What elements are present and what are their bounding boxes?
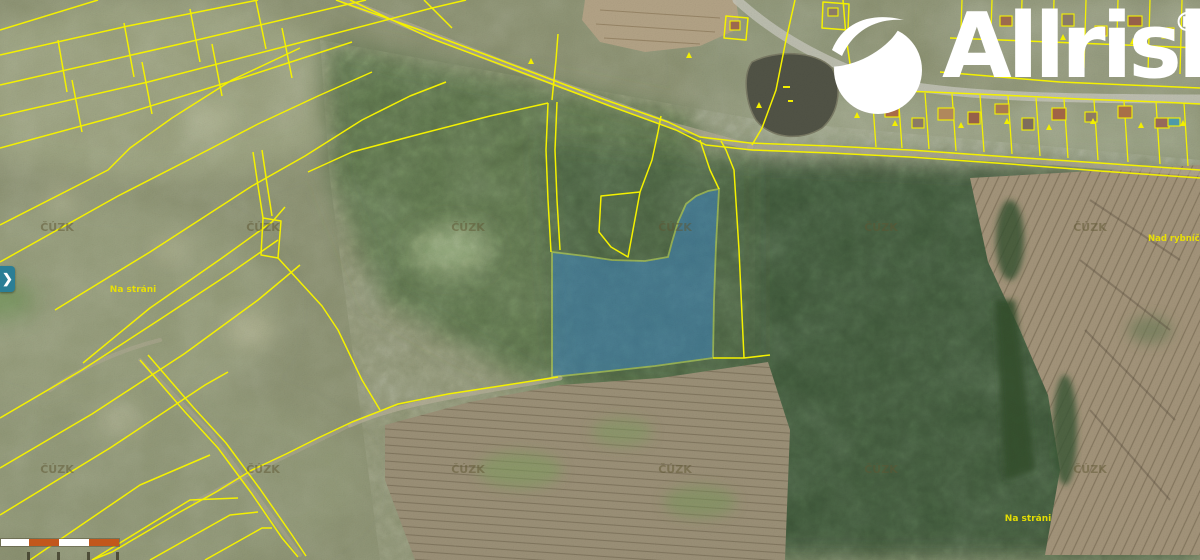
svg-text:ČÚZK: ČÚZK xyxy=(451,221,485,234)
svg-text:ČÚZK: ČÚZK xyxy=(246,463,280,476)
scalebar-segment xyxy=(89,539,119,546)
svg-text:ČÚZK: ČÚZK xyxy=(1073,221,1107,234)
svg-text:ČÚZK: ČÚZK xyxy=(658,463,692,476)
place-label-na-strani-west: Na stráni xyxy=(110,285,156,295)
chevron-right-icon: ❯ xyxy=(2,271,13,286)
svg-text:ČÚZK: ČÚZK xyxy=(1073,463,1107,476)
place-label-nad-rybnickem: Nad rybníčkem xyxy=(1148,233,1200,244)
scalebar-segment xyxy=(1,539,29,546)
svg-text:ČÚZK: ČÚZK xyxy=(864,221,898,234)
imagery-grain xyxy=(0,0,1200,560)
scalebar-segment xyxy=(29,539,59,546)
svg-text:ČÚZK: ČÚZK xyxy=(658,221,692,234)
svg-text:ČÚZK: ČÚZK xyxy=(40,463,74,476)
scalebar-segment xyxy=(59,539,89,546)
map-viewport: ČÚZK ČÚZK ČÚZK ČÚZK ČÚZK ČÚZK ČÚZK ČÚZK … xyxy=(0,0,1200,560)
panel-expand-button[interactable]: ❯ xyxy=(0,266,15,292)
svg-text:ČÚZK: ČÚZK xyxy=(246,221,280,234)
svg-text:ČÚZK: ČÚZK xyxy=(864,463,898,476)
svg-text:ČÚZK: ČÚZK xyxy=(40,221,74,234)
place-label-na-strani-south: Na stráni xyxy=(1005,514,1051,524)
svg-text:ČÚZK: ČÚZK xyxy=(451,463,485,476)
map-canvas[interactable]: ČÚZK ČÚZK ČÚZK ČÚZK ČÚZK ČÚZK ČÚZK ČÚZK … xyxy=(0,0,1200,560)
